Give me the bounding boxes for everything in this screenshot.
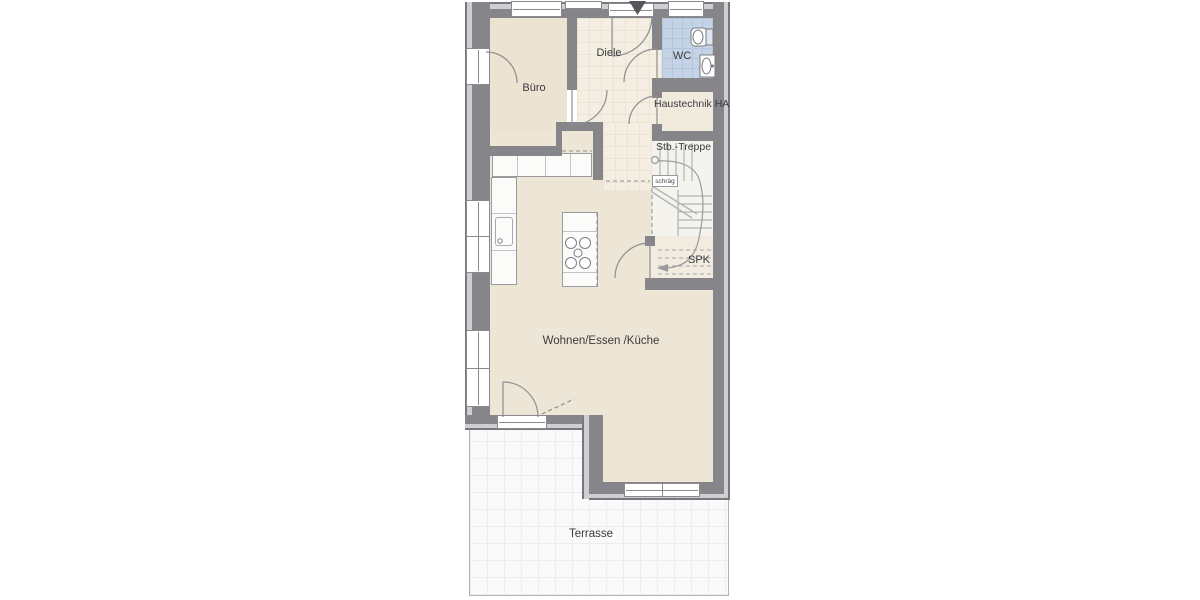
wall (713, 2, 724, 500)
entrance-threshold (608, 3, 654, 17)
wall-haustechnik-south (652, 131, 715, 141)
wall-wc-south (652, 78, 724, 92)
wall-connector (556, 131, 562, 146)
window-buero-west (466, 48, 490, 85)
wall (589, 498, 730, 500)
room-label-haustechnik: Haustechnik HA (654, 98, 729, 110)
room-label-diele: Diele (585, 47, 633, 59)
kitchen-island (562, 212, 598, 287)
counter-divider (492, 213, 516, 214)
wall-buero-south (487, 146, 562, 156)
room-label-terrasse: Terrasse (550, 528, 632, 540)
terrace-door-threshold (497, 415, 547, 429)
island-divider (563, 272, 597, 273)
room-label-wc: WC (664, 50, 700, 62)
room-floor-stair (652, 141, 713, 236)
wall-buero-south-east (556, 122, 603, 131)
wall-spk-west-stub (645, 236, 655, 246)
window-mullion (467, 368, 489, 369)
wall (728, 2, 730, 500)
kitchen-sink (495, 217, 513, 246)
counter-divider (570, 154, 571, 176)
room-floor-diele (577, 18, 662, 131)
room-floor-corridor (603, 122, 652, 190)
room-label-spk: SPK (688, 254, 710, 266)
wall-corridor-stub (593, 131, 603, 180)
label-schraeg: schräg (652, 175, 678, 187)
wall-diele-wc (652, 18, 662, 50)
room-label-buero: Büro (510, 82, 558, 94)
counter-divider (517, 154, 518, 176)
room-label-treppe: Stb.-Treppe (656, 141, 711, 153)
floor-plan-canvas: Büro Diele WC Haustechnik HA Stb.-Treppe… (0, 0, 1200, 600)
window-buero-north (511, 1, 562, 17)
window-mullion (467, 236, 489, 237)
counter-divider (492, 250, 516, 251)
room-floor-living-south (584, 415, 713, 484)
window-mullion (662, 484, 663, 496)
shutter-box-north (565, 1, 602, 9)
wall-buero-diele (567, 18, 577, 90)
wall-spk-south (645, 278, 713, 290)
island-divider (563, 231, 597, 232)
room-label-wohnen: Wohnen/Essen /Küche (520, 335, 682, 347)
kitchen-counter-top-row (492, 153, 592, 177)
counter-divider (545, 154, 546, 176)
window-wc-north (668, 1, 704, 17)
